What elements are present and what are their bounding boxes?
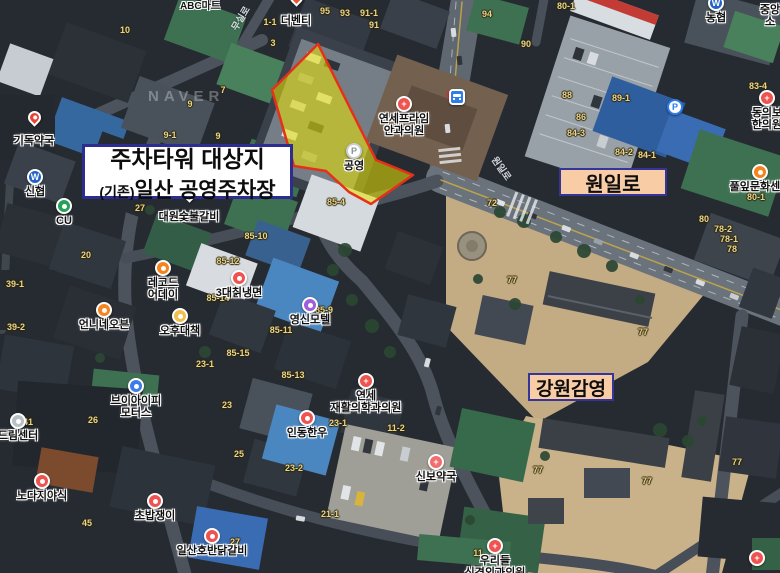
donguibogam-clinic-icon: + — [759, 90, 775, 106]
lot-number: 80-1 — [557, 1, 575, 11]
lot-number: 20 — [81, 250, 91, 260]
lot-number: 23-2 — [285, 463, 303, 473]
map-edge-text: ABC마트 — [180, 0, 220, 12]
map-stage: NAVER 101-13959391-191949080-18889-18684… — [0, 0, 780, 573]
lot-number: 39-1 — [6, 279, 24, 289]
chobap-jaengi-icon-dot — [153, 499, 158, 504]
site-annotation-line2: (기존)일산 공영주차장 — [99, 174, 275, 204]
vip-motors-label: 브이아이피모터스 — [111, 395, 162, 419]
lot-number: 21-1 — [321, 509, 339, 519]
map-scenery — [0, 0, 780, 573]
site-annotation-line1: 주차타워 대상지 — [110, 140, 265, 174]
sinhyup-bank-label: 신협 — [25, 186, 45, 198]
unnine-oven-icon-dot — [102, 308, 107, 313]
lot-number: 95 — [320, 6, 330, 16]
jungang-partial-label: 중앙소 — [760, 4, 780, 28]
lot-number: 10 — [120, 25, 130, 35]
lot-number: 91-1 — [360, 8, 378, 18]
ilsan-hoban-dakgalbi-icon-dot — [210, 534, 215, 539]
lot-number: 7 — [220, 85, 225, 95]
lot-number: 45 — [82, 518, 92, 528]
ilsan-hoban-dakgalbi-icon — [204, 528, 220, 544]
unnine-oven-icon — [96, 302, 112, 318]
lot-number: 93 — [340, 8, 350, 18]
road-annotation: 원일로 — [559, 168, 667, 196]
unnine-oven-label: 언니네오븐 — [79, 319, 130, 331]
dream-center-icon — [10, 413, 26, 429]
lot-number: 25 — [234, 449, 244, 459]
lot-number: 85-11 — [270, 325, 293, 335]
indong-hanwoo-icon — [299, 410, 315, 426]
ohu-daechaek-label: 오후대책 — [160, 325, 200, 337]
parking-p-icon: P — [667, 99, 683, 115]
indong-hanwoo-icon-dot — [305, 416, 310, 421]
public-parking-icon: P — [346, 143, 362, 159]
lot-number: 27 — [135, 203, 145, 213]
lot-number: 23 — [222, 400, 232, 410]
chobap-jaengi-icon — [147, 493, 163, 509]
lot-number: 9-1 — [163, 130, 176, 140]
urideul-clinic-label: 우리들신경외과의원 — [465, 555, 526, 573]
lot-number: 85-4 — [327, 197, 345, 207]
gidok-pharmacy-label: 기독약국 — [14, 135, 54, 147]
lot-number: 77 — [533, 465, 543, 475]
lot-number: 85-15 — [226, 348, 249, 358]
lot-number: 78-2 — [714, 224, 732, 234]
lot-number: 84-1 — [638, 150, 656, 160]
lot-number: 80-1 — [747, 192, 765, 202]
nodaji-yasik-icon-dot — [40, 479, 45, 484]
dream-center-icon-dot — [16, 419, 21, 424]
lot-number: 80 — [699, 214, 709, 224]
cu-store-icon-dot — [62, 204, 67, 209]
lot-number: 90 — [521, 39, 531, 49]
record-aday-icon-dot — [161, 266, 166, 271]
lot-number: 72 — [487, 198, 497, 208]
3dae-chik-naengmyeon-icon — [231, 270, 247, 286]
nodaji-yasik-label: 노다지야식 — [17, 490, 68, 502]
the-venti-label: 더벤티 — [281, 15, 311, 27]
ohu-daechaek-icon — [172, 308, 188, 324]
record-aday-label: 레코드어데이 — [148, 277, 178, 301]
vip-motors-icon-dot — [134, 384, 139, 389]
cu-store-icon — [56, 198, 72, 214]
yeongsin-motel-label: 영신모텔 — [290, 314, 330, 326]
pullip-culture-center-label: 풀잎문화센터 — [730, 181, 780, 193]
naver-watermark: NAVER — [148, 88, 224, 105]
lot-number: 78 — [727, 244, 737, 254]
vip-motors-icon — [128, 378, 144, 394]
lot-number: 89-1 — [612, 93, 630, 103]
lot-number: 9 — [187, 99, 192, 109]
lot-number: 84-3 — [567, 128, 585, 138]
ohu-daechaek-icon-dot — [178, 314, 183, 319]
landmark-annotation: 강원감영 — [528, 373, 614, 401]
urideul-clinic-icon: + — [487, 538, 503, 554]
yonsei-prime-eye-clinic-label: 연세프라임안과의원 — [379, 113, 430, 137]
hospital-bottom-right-icon: + — [749, 550, 765, 566]
nonghyup-bank-label: 농협 — [706, 12, 726, 24]
donguibogam-clinic-label: 동의보한의원 — [752, 107, 780, 131]
lot-number: 78-1 — [720, 234, 738, 244]
lot-number: 11-2 — [387, 423, 405, 433]
lot-number: 77 — [642, 476, 652, 486]
indong-hanwoo-label: 인동한우 — [287, 427, 327, 439]
site-annotation: 주차타워 대상지 (기존)일산 공영주차장 — [82, 144, 293, 199]
lot-number: 88 — [562, 90, 572, 100]
lot-number: 86 — [576, 112, 586, 122]
dream-center-label: 드림센터 — [0, 430, 38, 442]
daewon-charcoal-ribs-label: 대원숯불갈비 — [159, 211, 220, 223]
3dae-chik-naengmyeon-icon-dot — [237, 276, 242, 281]
yeongsin-motel-icon-dot — [308, 303, 313, 308]
site-annotation-prefix: (기존) — [99, 182, 134, 202]
lot-number: 26 — [88, 415, 98, 425]
lot-number: 77 — [732, 457, 742, 467]
lot-number: 23-1 — [196, 359, 214, 369]
sinhyup-bank-icon: W — [27, 169, 43, 185]
lot-number: 3 — [270, 38, 275, 48]
cu-store-label: CU — [56, 215, 72, 227]
3dae-chik-naengmyeon-label: 3대칡냉면 — [216, 287, 263, 299]
sinbo-pharmacy-label: 신보약국 — [416, 471, 456, 483]
bus-stop-icon — [449, 89, 465, 105]
lot-number: 77 — [638, 327, 648, 337]
pullip-culture-center-icon — [752, 164, 768, 180]
yeongsin-motel-icon — [302, 297, 318, 313]
yonsei-rehab-clinic-icon: + — [358, 373, 374, 389]
lot-number: 1-1 — [263, 17, 276, 27]
lot-number: 85-10 — [244, 231, 267, 241]
lot-number: 39-2 — [7, 322, 25, 332]
pullip-culture-center-icon-dot — [758, 170, 763, 175]
lot-number: 84-2 — [615, 147, 633, 157]
nodaji-yasik-icon — [34, 473, 50, 489]
chobap-jaengi-label: 초밥쟁이 — [135, 510, 175, 522]
lot-number: 85-13 — [281, 370, 304, 380]
lot-number: 94 — [482, 9, 492, 19]
record-aday-icon — [155, 260, 171, 276]
public-parking-label: 공영 — [344, 160, 364, 172]
site-annotation-main: 일산 공영주차장 — [135, 174, 276, 204]
yonsei-rehab-clinic-label: 연세재활의학과의원 — [331, 390, 402, 414]
lot-number: 23-1 — [329, 418, 347, 428]
ilsan-hoban-dakgalbi-label: 일산호반닭갈비 — [177, 545, 248, 557]
sinbo-pharmacy-icon: + — [428, 454, 444, 470]
lot-number: 77 — [507, 275, 517, 285]
lot-number: 91 — [369, 20, 379, 30]
lot-number: 85-12 — [216, 256, 239, 266]
yonsei-prime-eye-clinic-icon: + — [396, 96, 412, 112]
